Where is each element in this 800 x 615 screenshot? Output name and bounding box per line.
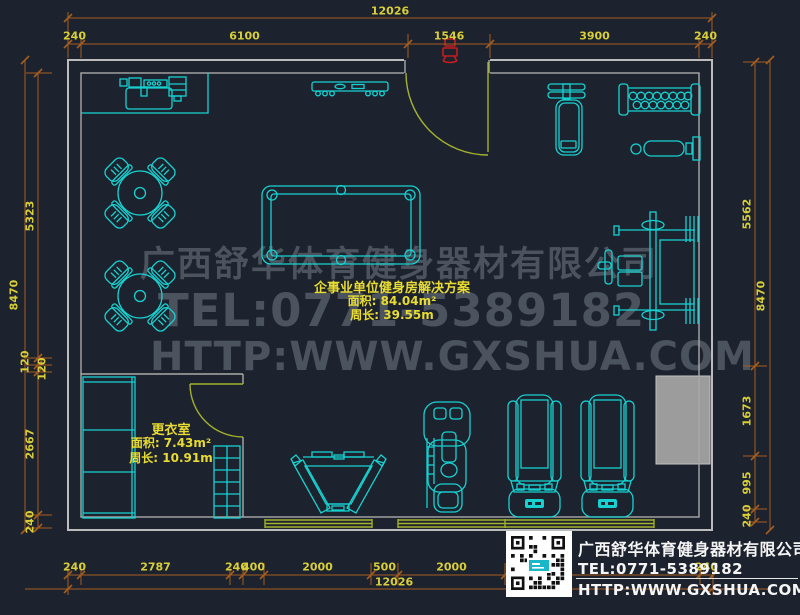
dim-label: 1673 bbox=[741, 396, 754, 427]
chair bbox=[102, 200, 133, 231]
dim-label: 240 bbox=[695, 561, 718, 574]
dim-label: 500 bbox=[373, 561, 396, 574]
cad-floor-plan: 广西舒华体育健身器材有限公司 TEL:0771-5389182 HTTP:WWW… bbox=[0, 0, 800, 615]
weight-bench-top bbox=[312, 82, 388, 96]
chair bbox=[102, 303, 133, 334]
chair bbox=[147, 258, 178, 289]
chair bbox=[147, 200, 178, 231]
changing-room-perimeter-label: 周长: 10.91m bbox=[129, 449, 212, 466]
dumbbell-rack bbox=[619, 84, 700, 115]
exercise-bike bbox=[424, 402, 470, 512]
changing-room-door bbox=[190, 384, 243, 437]
dim-label: 400 bbox=[242, 561, 265, 574]
treadmill bbox=[508, 395, 561, 517]
dim-label: 2000 bbox=[302, 561, 333, 574]
dim-label: 3900 bbox=[579, 30, 610, 43]
dim-label: 995 bbox=[741, 471, 754, 494]
room-perimeter-label: 周长: 39.55m bbox=[350, 306, 433, 323]
situp-machine bbox=[291, 452, 386, 513]
chair bbox=[102, 155, 133, 186]
treadmill bbox=[581, 395, 634, 517]
dim-label: 120 bbox=[19, 350, 32, 373]
dim-label: 12026 bbox=[375, 576, 413, 589]
dim-label: 240 bbox=[741, 504, 754, 527]
dim-label: 240 bbox=[694, 30, 717, 43]
dim-label: 5562 bbox=[741, 199, 754, 230]
treadmills bbox=[508, 395, 634, 517]
dim-label: 2787 bbox=[140, 561, 171, 574]
dim-label: 2000 bbox=[436, 561, 467, 574]
window-strips bbox=[265, 519, 654, 528]
multi-gym bbox=[598, 212, 698, 330]
reception-area bbox=[81, 73, 208, 113]
chair bbox=[102, 258, 133, 289]
dining-tables bbox=[102, 155, 178, 334]
dim-label: 240 bbox=[63, 561, 86, 574]
dim-label: 2667 bbox=[24, 428, 37, 459]
dim-label: 8470 bbox=[755, 281, 768, 312]
dim-label: 6100 bbox=[229, 30, 260, 43]
chair bbox=[147, 155, 178, 186]
dim-label: 240 bbox=[63, 30, 86, 43]
dim-label: 240 bbox=[24, 510, 37, 533]
chair bbox=[147, 303, 178, 334]
flat-bench bbox=[631, 137, 700, 160]
dim-label: 1546 bbox=[434, 30, 465, 43]
dim-label: 5323 bbox=[24, 200, 37, 231]
dim-label: 8470 bbox=[8, 280, 21, 311]
shoe-rack bbox=[214, 446, 240, 518]
locker-cabinet bbox=[83, 377, 135, 518]
dim-label: 12026 bbox=[371, 5, 409, 18]
column-block bbox=[656, 376, 710, 464]
dim-label: 120 bbox=[36, 357, 49, 380]
treadmill-top bbox=[548, 84, 585, 155]
billiard-table bbox=[262, 186, 420, 265]
